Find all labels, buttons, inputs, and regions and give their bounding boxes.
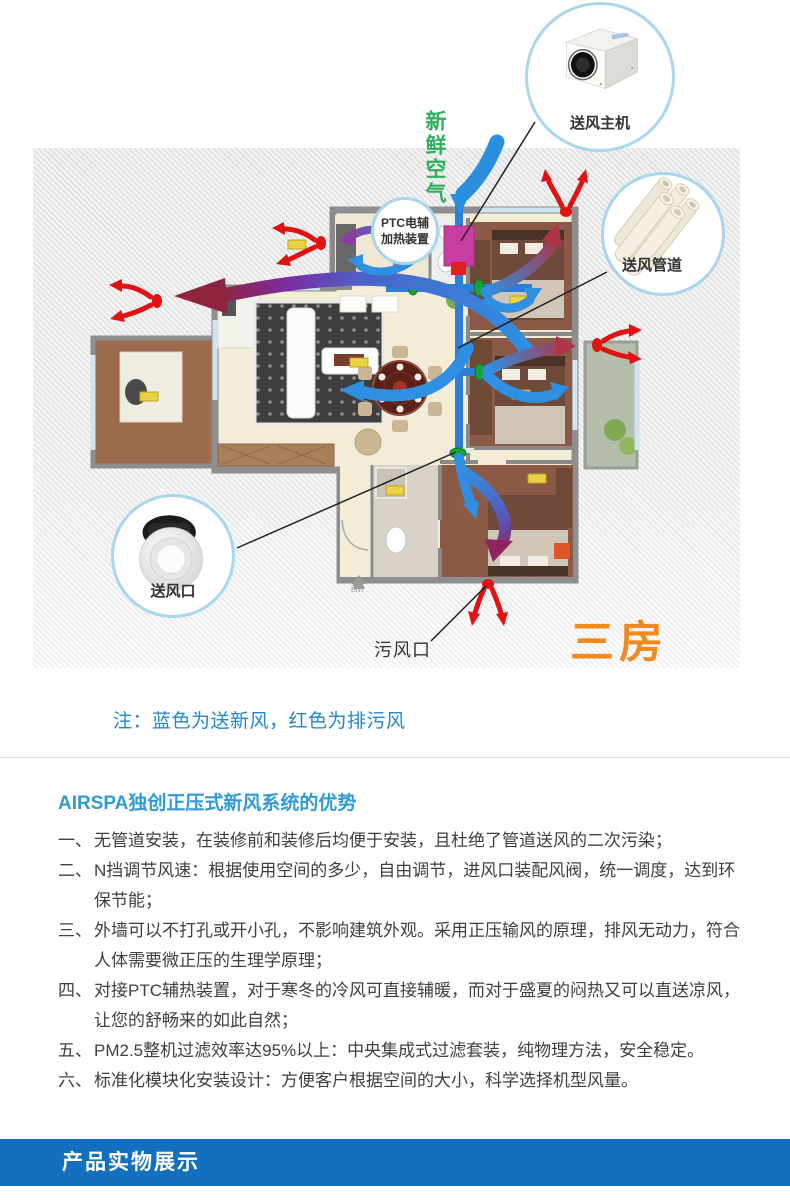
list-item: 一、 无管道安装，在装修前和装修后均便于安装，且杜绝了管道送风的二次污染； [58, 826, 752, 856]
section-divider [0, 757, 790, 758]
entry-arrow-icon [352, 578, 364, 586]
ptc-label-line1: PTC电辅 [381, 215, 429, 231]
ptc-label-line2: 加热装置 [381, 231, 429, 247]
supply-outlet-label: 送风口 [114, 580, 232, 601]
callout-supply-main-unit: 送风主机 [525, 2, 675, 152]
supply-duct-label: 送风管道 [604, 254, 740, 275]
item-text: 对接PTC辅热装置，对于寒冬的冷风可直接辅暖，而对于盛夏的闷热又可以直送凉风，让… [94, 976, 752, 1036]
list-item: 四、 对接PTC辅热装置，对于寒冬的冷风可直接辅暖，而对于盛夏的闷热又可以直送凉… [58, 976, 752, 1036]
advantages-section: AIRSPA独创正压式新风系统的优势 一、 无管道安装，在装修前和装修后均便于安… [58, 788, 752, 1096]
item-number: 一、 [58, 826, 94, 856]
item-number: 三、 [58, 916, 94, 976]
list-item: 二、 N挡调节风速：根据使用空间的多少，自由调节，进风口装配风阀，统一调度，达到… [58, 856, 752, 916]
advantages-list: 一、 无管道安装，在装修前和装修后均便于安装，且杜绝了管道送风的二次污染； 二、… [58, 826, 752, 1096]
list-item: 六、 标准化模块化安装设计：方便客户根据空间的大小，科学选择机型风量。 [58, 1066, 752, 1096]
item-text: 无管道安装，在装修前和装修后均便于安装，且杜绝了管道送风的二次污染； [94, 826, 752, 856]
ptc-heater-bubble: PTC电辅 加热装置 [371, 197, 439, 265]
three-rooms-logo: 三房 [570, 606, 668, 670]
item-text: PM2.5整机过滤效率达95%以上：中央集成式过滤套装，纯物理方法，安全稳定。 [94, 1036, 752, 1066]
duct-pipes-image [604, 175, 722, 299]
list-item: 三、 外墙可以不打孔或开小孔，不影响建筑外观。采用正压输风的原理，排风无动力，符… [58, 916, 752, 976]
section-banner: 产品实物展示 [0, 1139, 790, 1186]
item-number: 二、 [58, 856, 94, 916]
item-number: 五、 [58, 1036, 94, 1066]
list-item: 五、 PM2.5整机过滤效率达95%以上：中央集成式过滤套装，纯物理方法，安全稳… [58, 1036, 752, 1066]
supply-main-unit-label: 送风主机 [528, 112, 672, 133]
supply-unit-image [528, 5, 672, 117]
air-outlet-image [114, 497, 232, 621]
item-number: 四、 [58, 976, 94, 1036]
fresh-air-label: 新鲜空气 [419, 110, 449, 206]
callout-supply-duct: 送风管道 [601, 172, 725, 296]
callout-supply-outlet: 送风口 [111, 494, 235, 618]
banner-title: 产品实物展示 [0, 1139, 790, 1186]
color-legend-note: 注：蓝色为送新风，红色为排污风 [113, 706, 406, 733]
item-number: 六、 [58, 1066, 94, 1096]
advantages-heading: AIRSPA独创正压式新风系统的优势 [58, 788, 752, 815]
dirty-air-outlet-label: 污风口 [374, 636, 431, 662]
item-text: 标准化模块化安装设计：方便客户根据空间的大小，科学选择机型风量。 [94, 1066, 752, 1096]
item-text: 外墙可以不打孔或开小孔，不影响建筑外观。采用正压输风的原理，排风无动力，符合人体… [94, 916, 752, 976]
ventilation-diagram-section: 送风主机 送风管道 [0, 0, 790, 758]
entry-label: ENT [346, 578, 370, 594]
item-text: N挡调节风速：根据使用空间的多少，自由调节，进风口装配风阀，统一调度，达到环保节… [94, 856, 752, 916]
